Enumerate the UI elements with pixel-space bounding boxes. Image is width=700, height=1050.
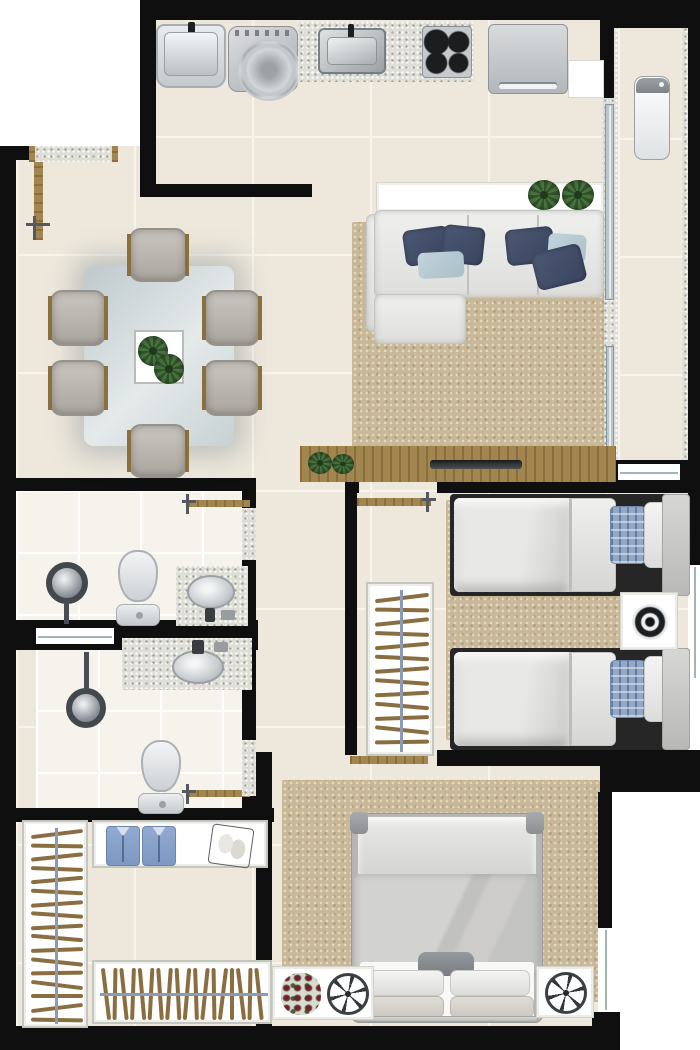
- kitchen-sink: [318, 28, 386, 74]
- vanity-faucet: [192, 640, 204, 654]
- sliding-glass-door-upper: [605, 104, 614, 300]
- twin-bedroom-door-handle: [422, 492, 436, 512]
- bed-blanket: [454, 652, 572, 746]
- bed-post: [526, 812, 544, 834]
- sink-faucet: [348, 24, 354, 46]
- vanity-sink: [187, 575, 235, 609]
- wall-kitchen-left: [140, 0, 156, 196]
- wall-left: [0, 146, 16, 1048]
- shoes: [207, 823, 254, 868]
- shower-social: [46, 562, 88, 604]
- tub-faucet: [188, 22, 195, 48]
- bath-social-threshold: [242, 508, 256, 560]
- dining-chair-right-2: [204, 360, 260, 416]
- laundry-tub: [156, 24, 226, 88]
- bed-plaid-pillow: [610, 506, 646, 564]
- vanity-social: [176, 566, 248, 626]
- toilet-tank: [116, 604, 160, 626]
- twin-nightstand: [620, 592, 678, 650]
- bath-suite-threshold: [242, 740, 256, 796]
- dining-chair-left-1: [50, 290, 106, 346]
- master-door-leaf: [350, 756, 428, 764]
- bath-social-door-handle: [182, 494, 196, 514]
- dining-chair-left-2: [50, 360, 106, 416]
- wardrobe-rail: [400, 590, 403, 752]
- cooktop: [422, 26, 472, 78]
- sliding-glass-door-lower: [606, 346, 614, 458]
- pinwheel-fan: [545, 972, 587, 1014]
- sofa-chaise: [374, 294, 466, 344]
- wardrobe-rail: [100, 993, 268, 996]
- bed-blanket: [454, 498, 572, 592]
- wall-kitchen-dining: [140, 184, 312, 197]
- pass-through-counter: [568, 60, 604, 98]
- closet-wardrobe-left: [22, 820, 88, 1028]
- console-plant: [332, 454, 354, 474]
- window-master: [598, 928, 612, 1012]
- wall-bottom: [0, 1026, 618, 1050]
- sofa-pillow: [417, 251, 464, 279]
- dining-chair-right-1: [204, 290, 260, 346]
- vanity-suite: [122, 638, 252, 690]
- heater-cap: [636, 78, 669, 93]
- bath-suite-door-leaf: [188, 790, 250, 797]
- twin-wardrobe: [366, 582, 434, 756]
- bath-suite-door-handle: [182, 784, 196, 804]
- folded-shirt: [142, 826, 176, 866]
- shower-suite-stem: [84, 652, 89, 690]
- wall-master-right: [598, 792, 612, 928]
- washing-machine: [228, 26, 298, 92]
- folded-shirt: [106, 826, 140, 866]
- shower-suite: [66, 688, 106, 728]
- entrance-door-handle: [26, 216, 50, 240]
- master-bed: [352, 814, 542, 1022]
- master-nightstand-right: [536, 966, 594, 1018]
- sideboard-plant: [528, 180, 560, 210]
- bed-plaid-pillow: [610, 660, 646, 718]
- wall-twin-left: [345, 493, 357, 755]
- floor-plan: [0, 0, 700, 1050]
- closet-wardrobe-bottom: [92, 960, 272, 1024]
- twin-bedroom-door-leaf: [357, 498, 431, 506]
- speaker: [632, 604, 668, 640]
- bath-social-door-leaf: [188, 500, 250, 507]
- entrance-jamb-right: [112, 146, 118, 162]
- console-plant: [308, 452, 332, 474]
- twin-bed-2: [450, 648, 690, 750]
- bed-headboard: [662, 648, 690, 750]
- dining-centerpiece: [134, 330, 184, 384]
- toilet-tank: [138, 793, 184, 814]
- vanity-sink: [172, 650, 224, 684]
- wall-bath-social-top: [16, 478, 244, 491]
- bed-post: [350, 812, 368, 834]
- wall-top-right-block: [612, 0, 700, 28]
- closet-shelf: [92, 820, 268, 868]
- bed-top-blanket: [357, 816, 537, 878]
- bed-headboard: [356, 1016, 538, 1022]
- twin-bed-1: [450, 494, 690, 596]
- toilet-social: [116, 550, 160, 626]
- outside-top-left: [0, 0, 140, 146]
- vanity-soap: [221, 610, 235, 620]
- roses: [281, 973, 321, 1015]
- entrance-jamb-left: [29, 146, 35, 162]
- water-heater: [634, 76, 670, 160]
- sideboard-plant: [562, 180, 594, 210]
- wall-master-corner: [592, 1012, 620, 1050]
- bed-pillow: [450, 970, 530, 996]
- dining-chair-bottom: [129, 424, 187, 478]
- dining-chair-top: [129, 228, 187, 282]
- toilet-bowl: [141, 740, 181, 792]
- master-nightstand-left: [272, 966, 374, 1020]
- outside-bottom-right: [612, 792, 700, 1050]
- tv-console: [300, 446, 616, 482]
- toilet-bowl: [118, 550, 158, 602]
- vanity-faucet: [205, 608, 215, 622]
- toilet-suite: [138, 740, 184, 814]
- shower-social-stem: [64, 600, 69, 624]
- wall-below-twin-block: [600, 752, 700, 792]
- bed-headboard: [662, 494, 690, 596]
- bed-pillow: [450, 996, 534, 1018]
- bed-pillow: [364, 970, 444, 996]
- wardrobe-rail: [55, 828, 58, 1024]
- tv: [430, 460, 522, 469]
- window-balcony-bottom: [618, 464, 680, 480]
- refrigerator: [488, 24, 568, 94]
- pinwheel-fan: [327, 973, 369, 1015]
- entrance-threshold: [34, 146, 116, 162]
- centerpiece-plant: [154, 354, 184, 384]
- vent-window-baths: [36, 628, 114, 644]
- vanity-soap: [214, 642, 228, 652]
